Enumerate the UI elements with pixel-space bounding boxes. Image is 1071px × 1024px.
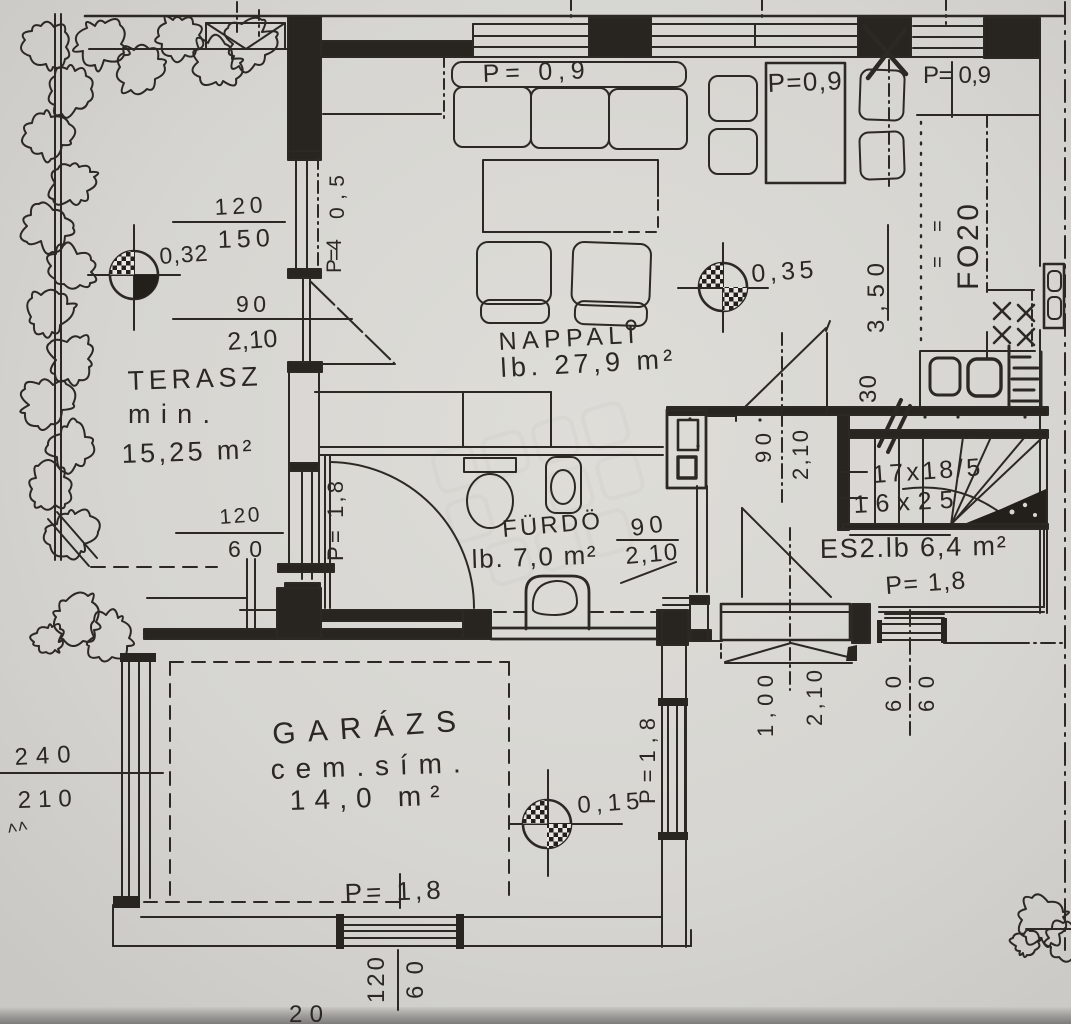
svg-text:=: = — [927, 220, 949, 232]
svg-text:FO20: FO20 — [952, 204, 985, 290]
svg-text:0,5: 0,5 — [326, 175, 349, 219]
svg-text:P= 1,8: P= 1,8 — [884, 566, 966, 600]
svg-text:120: 120 — [214, 192, 263, 220]
svg-text:30: 30 — [855, 375, 882, 403]
svg-text:2,10: 2,10 — [788, 430, 813, 480]
svg-text:P=4: P=4 — [323, 239, 346, 273]
svg-text:3,50: 3,50 — [863, 263, 890, 333]
svg-text:=: = — [927, 256, 949, 268]
svg-text:0,35: 0,35 — [750, 256, 814, 288]
svg-text:2,10: 2,10 — [624, 539, 678, 570]
svg-text:1,00: 1,00 — [753, 675, 778, 737]
svg-text:0,15: 0,15 — [577, 788, 641, 819]
svg-text:P=1,8: P=1,8 — [635, 718, 660, 804]
svg-text:ES2.lb 6,4 m²: ES2.lb 6,4 m² — [820, 531, 1006, 564]
svg-text:0,32: 0,32 — [159, 240, 209, 269]
svg-text:˄˄: ˄˄ — [5, 816, 29, 839]
svg-text:210: 210 — [17, 785, 72, 814]
svg-text:2,10: 2,10 — [226, 325, 278, 356]
svg-text:P= 0,9: P= 0,9 — [923, 62, 991, 89]
svg-text:lb. 7,0 m²: lb. 7,0 m² — [471, 540, 596, 574]
svg-text:150: 150 — [217, 224, 270, 254]
svg-text:120: 120 — [219, 503, 261, 529]
svg-text:P=0,9: P=0,9 — [767, 65, 842, 98]
svg-text:2,10: 2,10 — [802, 670, 827, 726]
svg-text:240: 240 — [14, 741, 71, 771]
svg-text:120: 120 — [363, 957, 390, 1003]
